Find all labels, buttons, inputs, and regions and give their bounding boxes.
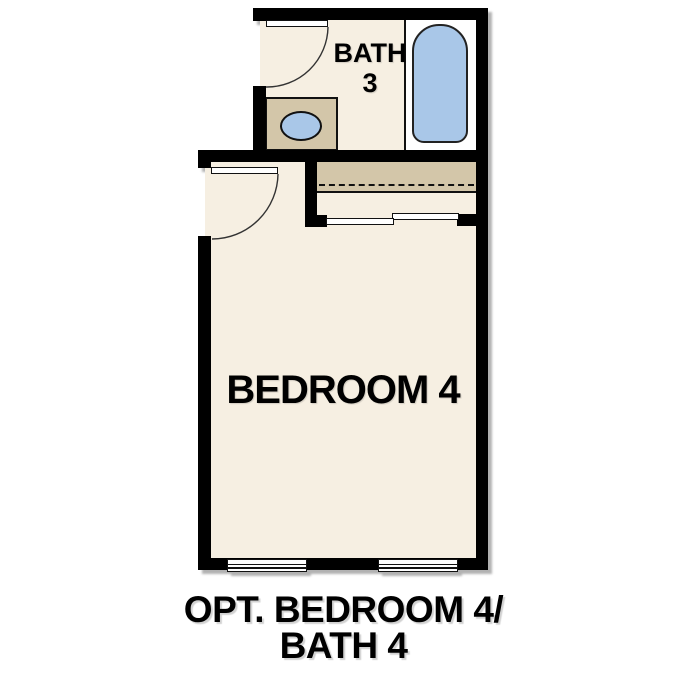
floorplan: BATH 3 BEDROOM 4 <box>0 0 687 687</box>
closet-bypass-door-left <box>326 218 394 225</box>
caption-line2: BATH 4 <box>0 628 687 664</box>
plan-caption: OPT. BEDROOM 4/ BATH 4 <box>0 592 687 664</box>
wall-bath-top <box>253 8 488 20</box>
window-pane-line <box>379 564 457 566</box>
bedroom-label-text: BEDROOM 4 <box>205 368 481 412</box>
caption-line1: OPT. BEDROOM 4/ <box>0 592 687 628</box>
wall-bath-left-corner <box>253 8 266 21</box>
sink <box>280 111 322 141</box>
wall-closet-partition <box>305 162 317 218</box>
window-pane-line <box>379 567 457 569</box>
bedroom-room-label: BEDROOM 4 <box>205 368 481 412</box>
closet-shelf <box>317 162 476 193</box>
wall-closet-partition-foot <box>305 215 327 227</box>
wall-divider <box>198 150 488 162</box>
bath-label-line2: 3 <box>300 68 440 98</box>
wall-bedroom-left-stub <box>198 150 211 168</box>
bedroom-door-leaf <box>211 167 278 174</box>
window-pane-line <box>228 564 306 566</box>
closet-bypass-door-right <box>392 213 459 220</box>
wall-bath-left <box>253 86 266 152</box>
closet-hanging-rod <box>319 184 474 186</box>
bath-room-label: BATH 3 <box>300 38 440 98</box>
wall-right <box>476 8 488 570</box>
bath-door-leaf <box>266 20 328 27</box>
floorplan-canvas: BATH 3 BEDROOM 4 OPT. BEDROOM 4/ BATH 4 <box>0 0 687 687</box>
window-right <box>378 559 458 572</box>
wall-closet-right-stub <box>457 214 476 226</box>
window-left <box>227 559 307 572</box>
bath-label-line1: BATH <box>300 38 440 68</box>
window-pane-line <box>228 567 306 569</box>
